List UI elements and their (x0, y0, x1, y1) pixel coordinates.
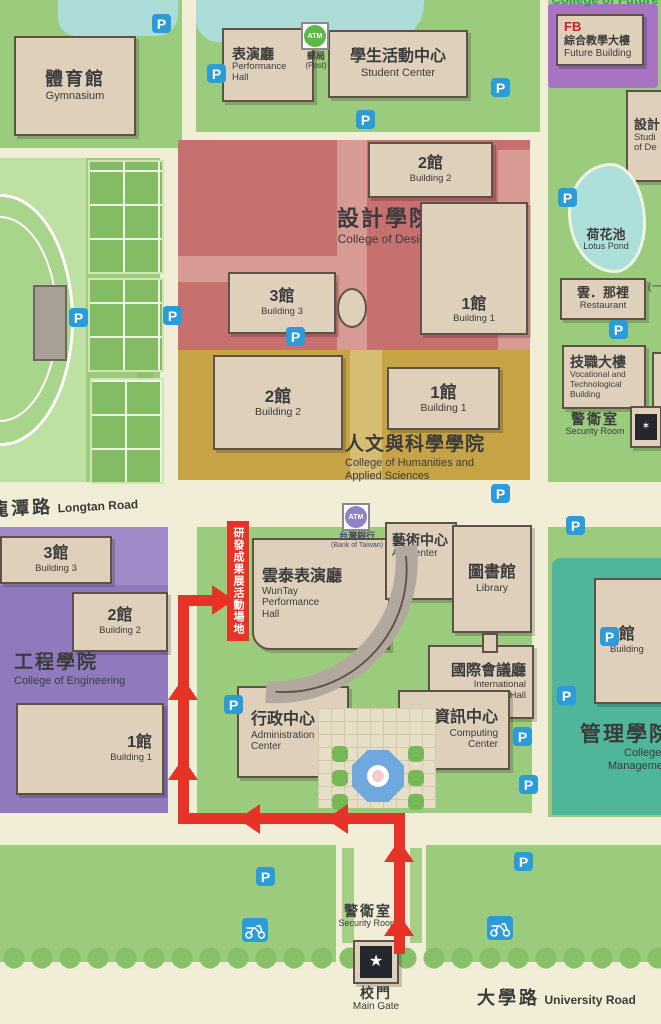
future-building-en: Future Building (564, 48, 631, 60)
longtan-road-en: Longtan Road (57, 497, 138, 515)
route-arrow-left (238, 804, 260, 834)
performance-hall-zh: 表演廳 (232, 46, 274, 62)
design-building3: 3館 Building 3 (228, 272, 336, 334)
university-road-en: University Road (544, 993, 635, 1007)
computing-center-en2: Center (468, 739, 498, 751)
design-b2-zh: 2館 (418, 155, 443, 173)
longtan-road-label: 龍潭路 Longtan Road (0, 488, 139, 522)
post-office-en: (Post) (298, 62, 334, 71)
basketball-courts-south (90, 378, 164, 484)
eng-b2-zh: 2館 (108, 607, 133, 625)
bank-en: (Bank of Taiwan) (322, 542, 392, 550)
restaurant-building: 雲．那裡 Restaurant (560, 278, 646, 320)
conference-hall-en1: International (474, 680, 526, 691)
university-road-label: 大學路 University Road (477, 984, 636, 1010)
route-arrow-up (384, 840, 414, 862)
gymnasium-building: 體育館 Gymnasium (14, 36, 136, 136)
eng-b1-zh: 1館 (127, 734, 152, 752)
parking-icon: P (491, 78, 510, 97)
bank-atm-icon: ATM (345, 506, 367, 528)
parking-icon: P (566, 516, 585, 535)
college-of-future-title: College of Future (540, 0, 661, 8)
lotus-pond-zh: 荷花池 (575, 228, 637, 242)
design-b1-zh: 1館 (462, 296, 487, 314)
lotus-pond-en: Lotus Pond (575, 242, 637, 252)
college-of-humanities-en2: Applied Sciences (345, 470, 525, 483)
water-tower-partial (652, 352, 661, 408)
student-center-en: Student Center (361, 67, 435, 80)
design-b1-en: Building 1 (453, 314, 495, 325)
parking-icon: P (491, 484, 510, 503)
main-gate-zh: 校門 (338, 986, 414, 1001)
design-b3-en: Building 3 (261, 307, 303, 318)
parking-icon: P (69, 308, 88, 327)
conference-hall-zh: 國際會議廳 (451, 662, 526, 679)
engineering-building1: 1館 Building 1 (16, 703, 164, 795)
main-gate-building: ★ (353, 940, 399, 984)
parking-icon: P (558, 188, 577, 207)
route-arrow-up (168, 758, 198, 780)
longtan-road-zh: 龍潭路 (0, 497, 54, 520)
design-studios-building-partial: 設計 Studi of De (626, 90, 661, 182)
college-of-future-label: College of Future (552, 0, 659, 7)
vocational-en3: Building (570, 390, 600, 400)
main-gate-label: 校門 Main Gate (338, 986, 414, 1012)
college-of-management-zh: 管理學院 (580, 722, 661, 747)
route-arrow-left (326, 804, 348, 834)
college-of-management-en2: Management (580, 760, 661, 773)
hum-b1-en: Building 1 (420, 402, 466, 414)
computing-center-zh: 資訊中心 (434, 709, 498, 727)
hum-b2-zh: 2館 (265, 387, 291, 407)
gymnasium-en: Gymnasium (46, 90, 105, 103)
college-of-engineering-zh: 工程學院 (14, 652, 174, 675)
admin-center-zh: 行政中心 (251, 711, 315, 729)
library-corridor (482, 633, 498, 653)
parking-icon: P (600, 627, 619, 646)
gymnasium-zh: 體育館 (45, 69, 105, 90)
parking-icon: P (256, 867, 275, 886)
route-segment-vertical (178, 595, 189, 824)
main-gate-en: Main Gate (338, 1001, 414, 1012)
stand-building (33, 285, 67, 361)
parking-icon: P (286, 327, 305, 346)
campus-map: College of Future 龍潭路 Longtan Road 大學路 U… (0, 0, 661, 1024)
plaza-tree (332, 746, 348, 762)
future-building-zh: 綜合教學大樓 (564, 35, 630, 48)
eng-b3-zh: 3館 (44, 545, 69, 563)
restaurant-en: Restaurant (580, 301, 626, 312)
route-arrow-up (384, 914, 414, 936)
bank-atm-label: ATM (349, 514, 364, 521)
route-segment-horizontal (178, 813, 405, 824)
engineering-building3: 3館 Building 3 (0, 536, 112, 584)
event-venue-text: 研發成果展活動場地 (227, 527, 249, 635)
student-center-zh: 學生活動中心 (350, 48, 446, 66)
performance-hall-en2: Hall (232, 73, 248, 84)
library-building: 圖書館 Library (452, 525, 532, 633)
atm-icon: ATM (304, 25, 326, 47)
college-of-humanities-en1: College of Humanities and (345, 457, 525, 470)
parking-icon: P (207, 64, 226, 83)
security-room-east-zh: 警衛室 (560, 412, 630, 427)
design-b3-zh: 3館 (270, 288, 295, 306)
bank-atm-box: ATM (342, 503, 370, 531)
vocational-building: 技職大樓 Vocational and Technological Buildi… (562, 345, 646, 409)
event-venue-label: 研發成果展活動場地 (227, 521, 249, 641)
college-of-engineering-en: College of Engineering (14, 675, 174, 688)
library-zh: 圖書館 (468, 564, 516, 582)
parking-icon: P (519, 775, 538, 794)
security-room-east-label: 警衛室 Security Room (560, 412, 630, 437)
plaza-tree (332, 770, 348, 786)
computing-center-en1: Computing (450, 728, 498, 740)
post-atm-box: ATM (301, 22, 329, 50)
parking-icon: P (557, 686, 576, 705)
motorcycle-parking-icon (487, 916, 513, 945)
plaza-tree (408, 794, 424, 810)
college-of-management-title: 管理學院 College of Management (580, 722, 661, 774)
wuntay-arc (248, 532, 438, 712)
restaurant-zh: 雲．那裡 (577, 286, 629, 301)
college-of-humanities-zh: 人文與科學學院 (345, 434, 525, 457)
main-gate-emblem-icon: ★ (360, 946, 392, 978)
eng-b1-en: Building 1 (110, 753, 152, 764)
parking-icon: P (513, 727, 532, 746)
college-of-humanities-title: 人文與科學學院 College of Humanities and Applie… (345, 434, 525, 483)
parking-icon: P (609, 320, 628, 339)
admin-center-en1: Administration (251, 730, 314, 742)
security-room-east-en: Security Room (560, 427, 630, 437)
future-building: FB 綜合教學大樓 Future Building (556, 14, 644, 66)
college-of-management-en1: College of (580, 747, 661, 760)
eng-b2-en: Building 2 (99, 626, 141, 637)
security-room-east-building: ✶ (630, 406, 661, 448)
parking-icon: P (356, 110, 375, 129)
restaurant-aside-partial: (一碗 (648, 282, 661, 293)
mgmt-b1-en: Building (610, 645, 644, 656)
hum-b1-zh: 1館 (430, 383, 456, 403)
route-arrow-up (168, 678, 198, 700)
tree-row-bottom (0, 944, 661, 974)
parking-icon: P (163, 306, 182, 325)
hum-b2-en: Building 2 (255, 406, 301, 418)
motorcycle-parking-icon (242, 918, 268, 947)
post-office-label: 郵局 (Post) (298, 52, 334, 71)
bank-zh: 台灣銀行 (322, 532, 392, 542)
bank-label: 台灣銀行 (Bank of Taiwan) (322, 532, 392, 550)
future-building-code: FB (564, 20, 581, 35)
library-en: Library (476, 582, 508, 594)
design-studios-zh: 設計 (634, 118, 660, 133)
eng-b3-en: Building 3 (35, 564, 77, 575)
basketball-courts-north (88, 160, 164, 274)
humanities-building2: 2館 Building 2 (213, 355, 343, 450)
college-of-engineering-title: 工程學院 College of Engineering (6, 652, 174, 688)
parking-icon: P (514, 852, 533, 871)
design-building2: 2館 Building 2 (368, 142, 493, 198)
engineering-building2: 2館 Building 2 (72, 592, 168, 652)
plaza-tree (408, 770, 424, 786)
plaza-tree (408, 746, 424, 762)
atm-label: ATM (308, 33, 323, 40)
design-studios-en2: of De (634, 143, 657, 154)
design-b2-en: Building 2 (410, 174, 452, 185)
design-building1: 1館 Building 1 (420, 202, 528, 335)
security-emblem-icon: ✶ (635, 414, 657, 440)
university-road-zh: 大學路 (477, 988, 540, 1008)
student-center-building: 學生活動中心 Student Center (328, 30, 468, 98)
admin-center-en2: Center (251, 741, 281, 753)
tennis-courts (88, 278, 164, 372)
design-oval-plaza (337, 288, 367, 328)
parking-icon: P (152, 14, 171, 33)
humanities-building1: 1館 Building 1 (387, 367, 500, 430)
vocational-zh: 技職大樓 (570, 354, 626, 370)
parking-icon: P (224, 695, 243, 714)
